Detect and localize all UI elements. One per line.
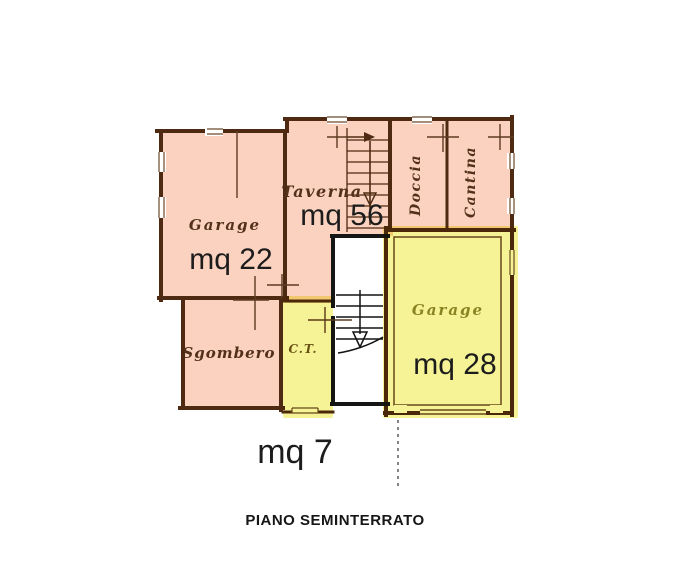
label-garage22: Garage — [189, 216, 261, 234]
area-garage28: mq 28 — [413, 348, 496, 381]
label-doccia: Doccia — [408, 154, 424, 217]
label-sgombero: Sgombero — [182, 344, 275, 362]
area-garage22: mq 22 — [189, 243, 272, 276]
plan-title: PIANO SEMINTERRATO — [245, 512, 424, 529]
floorplan-drawing: Garage Taverna Doccia Cantina Sgombero C… — [0, 0, 678, 586]
floorplan-page: Garage Taverna Doccia Cantina Sgombero C… — [0, 0, 678, 586]
area-ct: mq 7 — [257, 433, 333, 471]
label-cantina: Cantina — [463, 146, 479, 218]
area-taverna: mq 56 — [300, 199, 383, 232]
